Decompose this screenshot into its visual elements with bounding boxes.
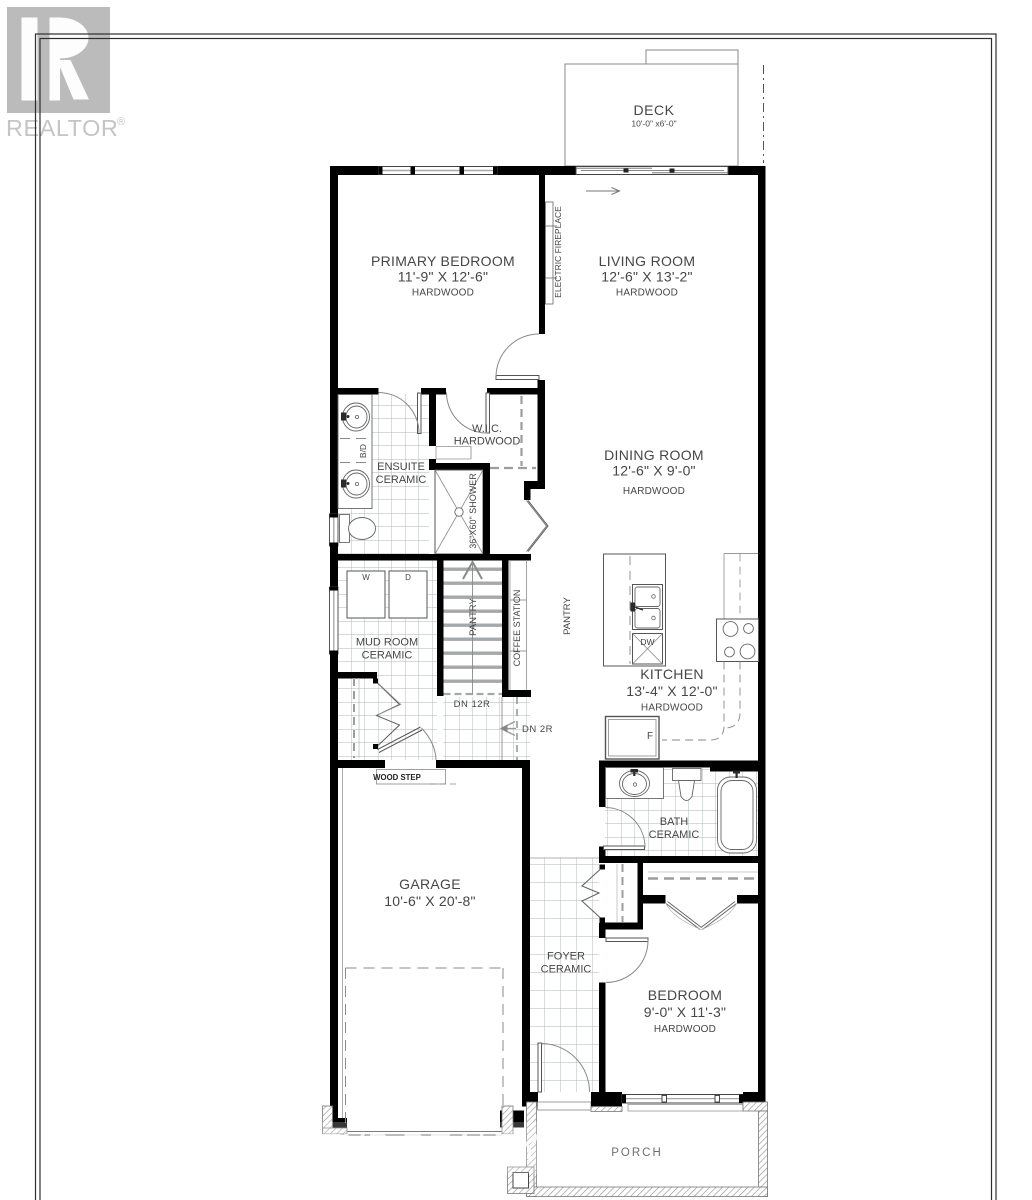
svg-text:12'-6" X 9'-0": 12'-6" X 9'-0" — [612, 463, 695, 479]
svg-text:EXP REALTY, Brokerage: EXP REALTY, Brokerage — [318, 1126, 729, 1167]
svg-text:HARDWOOD: HARDWOOD — [412, 288, 474, 299]
svg-text:12'-6" X 13'-2": 12'-6" X 13'-2" — [601, 269, 692, 285]
svg-text:MUD ROOM: MUD ROOM — [356, 637, 418, 649]
svg-text:ELECTRIC FIREPLACE: ELECTRIC FIREPLACE — [553, 206, 563, 298]
svg-text:WOOD STEP: WOOD STEP — [373, 773, 421, 782]
svg-text:BEDROOM: BEDROOM — [648, 987, 722, 1003]
svg-text:B/D: B/D — [358, 444, 368, 458]
svg-text:13'-4" X 12'-0": 13'-4" X 12'-0" — [626, 683, 717, 699]
svg-text:LIVING ROOM: LIVING ROOM — [599, 253, 696, 269]
svg-text:®: ® — [117, 116, 125, 128]
svg-text:REALTOR: REALTOR — [6, 115, 118, 141]
svg-text:PORCH: PORCH — [611, 1147, 663, 1159]
svg-text:HARDWOOD: HARDWOOD — [616, 288, 678, 299]
svg-text:36"X60" SHOWER: 36"X60" SHOWER — [468, 473, 478, 549]
svg-text:CERAMIC: CERAMIC — [362, 650, 413, 662]
svg-text:GARAGE: GARAGE — [399, 876, 461, 892]
svg-text:10'-0" x6'-0": 10'-0" x6'-0" — [631, 119, 676, 129]
svg-text:HARDWOOD: HARDWOOD — [454, 436, 521, 448]
svg-text:DN 12R: DN 12R — [454, 699, 491, 710]
svg-text:PRIMARY BEDROOM: PRIMARY BEDROOM — [371, 253, 515, 269]
svg-text:D: D — [405, 573, 411, 582]
svg-text:FOYER: FOYER — [547, 951, 585, 963]
svg-text:F: F — [647, 731, 653, 742]
svg-text:DINING ROOM: DINING ROOM — [604, 447, 704, 463]
svg-text:DN 2R: DN 2R — [522, 724, 553, 735]
svg-text:W: W — [362, 573, 370, 582]
svg-text:ENSUITE: ENSUITE — [377, 461, 425, 473]
svg-text:COFFEE STATION: COFFEE STATION — [512, 590, 522, 667]
svg-text:CERAMIC: CERAMIC — [376, 474, 427, 486]
svg-text:CERAMIC: CERAMIC — [649, 829, 700, 841]
svg-text:DW: DW — [640, 637, 654, 647]
svg-text:BATH: BATH — [660, 816, 689, 828]
svg-text:CERAMIC: CERAMIC — [541, 964, 592, 976]
svg-text:HARDWOOD: HARDWOOD — [623, 486, 685, 497]
svg-text:11'-9" X 12'-6": 11'-9" X 12'-6" — [398, 269, 488, 285]
svg-text:HARDWOOD: HARDWOOD — [654, 1024, 716, 1035]
svg-text:10'-6" X 20'-8": 10'-6" X 20'-8" — [384, 893, 475, 909]
svg-text:PANTRY: PANTRY — [562, 597, 573, 635]
svg-text:DECK: DECK — [634, 102, 675, 118]
svg-text:PANTRY: PANTRY — [468, 598, 479, 636]
svg-text:W.I.C.: W.I.C. — [472, 423, 502, 435]
svg-text:KITCHEN: KITCHEN — [640, 666, 704, 682]
svg-text:9'-0" X 11'-3": 9'-0" X 11'-3" — [644, 1004, 726, 1020]
svg-text:HARDWOOD: HARDWOOD — [641, 703, 703, 714]
